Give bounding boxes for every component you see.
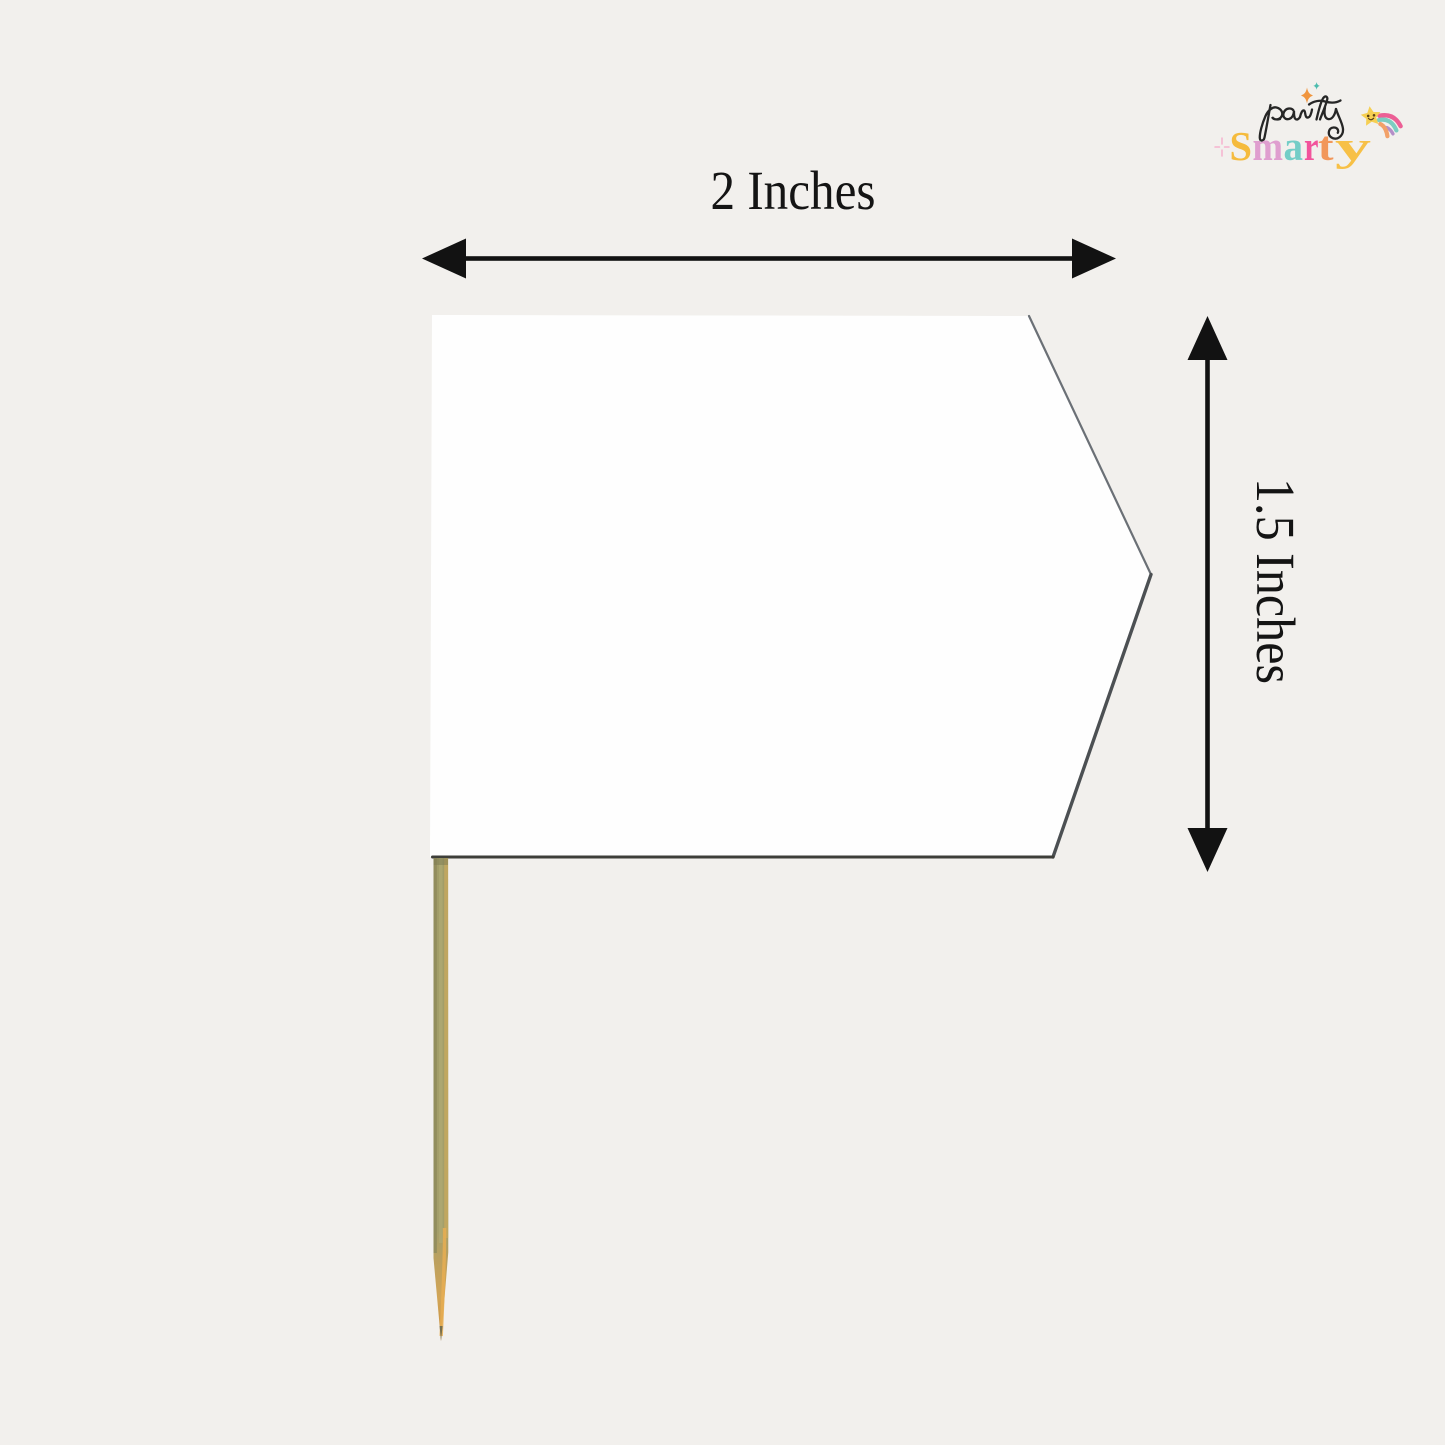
- svg-text:t: t: [1318, 123, 1334, 169]
- svg-text:y: y: [1335, 123, 1372, 169]
- svg-text:m: m: [1253, 123, 1284, 169]
- svg-text:S: S: [1230, 123, 1253, 169]
- svg-text:2 Inches: 2 Inches: [711, 160, 876, 221]
- svg-text:r: r: [1304, 123, 1319, 169]
- svg-text:a: a: [1284, 123, 1304, 169]
- svg-text:1.5 Inches: 1.5 Inches: [1245, 478, 1306, 684]
